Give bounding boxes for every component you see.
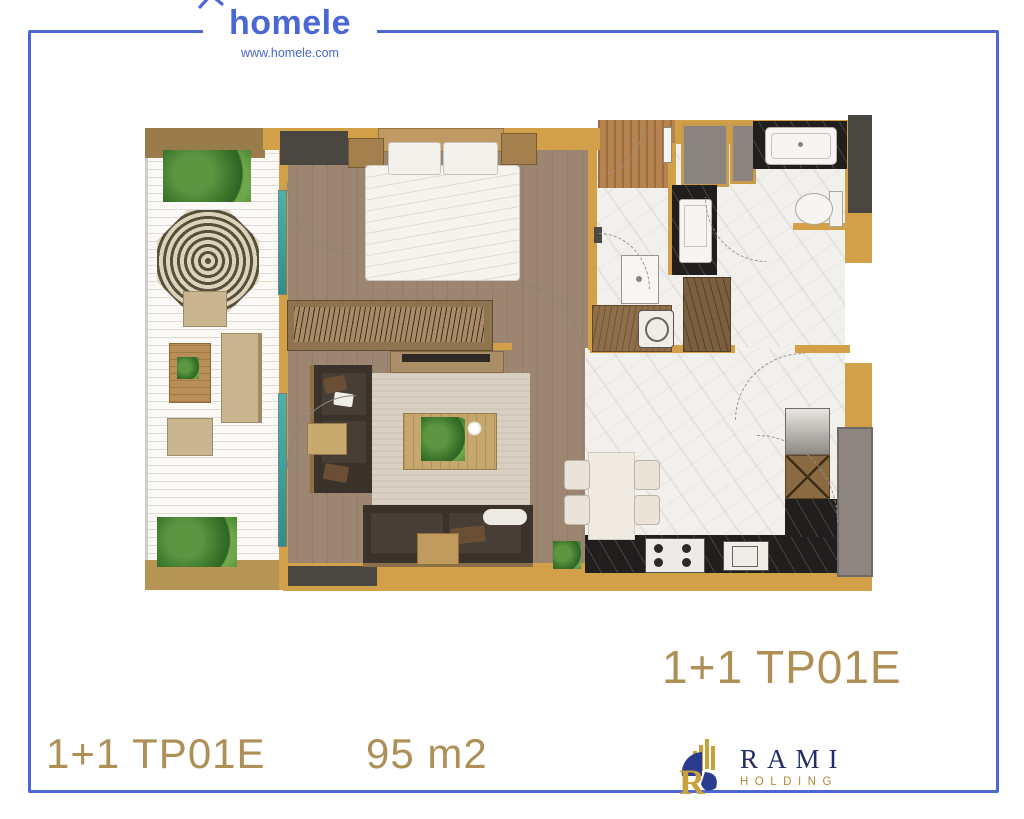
nightstand-left [348,138,384,168]
rami-subtitle: HOLDING [740,776,847,788]
rami-holding-logo: R RAMI HOLDING [678,736,847,798]
dining-table [588,452,635,540]
entry-door-leaf [663,127,672,163]
white-blanket [483,509,527,525]
bath-kitchen-wall-b [795,345,850,353]
brand-website: www.homele.com [215,46,365,60]
kitchen-counter [585,535,850,573]
unit-label-large: 1+1 TP01E [662,640,902,694]
pillow-right [443,142,498,175]
hall-closet-1 [681,123,729,187]
balcony-chair-2 [167,418,213,456]
unit-label: 1+1 TP01E [46,730,266,778]
dining-chair [564,495,590,525]
brand-wordmark: homele [229,6,351,40]
right-top-slab [848,115,872,213]
svg-text:R: R [679,762,706,798]
balcony-table-plant [177,357,199,379]
table-plant [421,417,465,461]
sink-basin [732,546,758,567]
house-roof-icon [198,0,228,9]
kitchen-plant [553,541,581,569]
floor-plan [145,105,872,592]
wardrobe-rail [294,307,484,342]
balcony-plant-top [163,150,251,202]
living-slider-door [278,393,287,547]
kitchen-sink [723,541,769,571]
bedroom-slider-door [278,190,287,295]
brand-logo: homele www.homele.com [203,4,377,66]
balcony-plant-bottom [157,517,237,567]
washer-drum [645,317,669,342]
dining-chair [564,460,590,490]
building-monogram-icon: R [678,736,730,798]
burner [682,544,691,553]
bottom-window [285,566,377,586]
tv [402,354,490,362]
wardrobe [287,300,493,351]
dining-chair [634,495,660,525]
balcony-edge [145,128,148,590]
burner [654,544,663,553]
unit-area: 95 m2 [366,730,488,778]
table-flower [467,421,482,436]
bedroom-closet [280,131,348,165]
stove [645,538,705,573]
dining-chair [634,460,660,490]
burner [654,558,663,567]
balcony-sofa [221,333,262,423]
bathtub [765,127,837,165]
toilet-bowl [795,193,833,225]
hall-cabinet [683,277,731,352]
bed-duvet [365,165,520,281]
rami-name: RAMI [740,746,847,773]
page: homele www.homele.com [0,0,1024,819]
sofa-tray-table [417,533,459,565]
sink-inner [684,205,707,247]
rami-text: RAMI HOLDING [740,746,847,788]
fridge [837,427,873,577]
burner [682,558,691,567]
nightstand-right [501,133,537,165]
pillow-left [388,142,441,175]
balcony-chair-1 [183,291,227,327]
tub-faucet [798,142,803,147]
washing-machine [638,310,674,348]
